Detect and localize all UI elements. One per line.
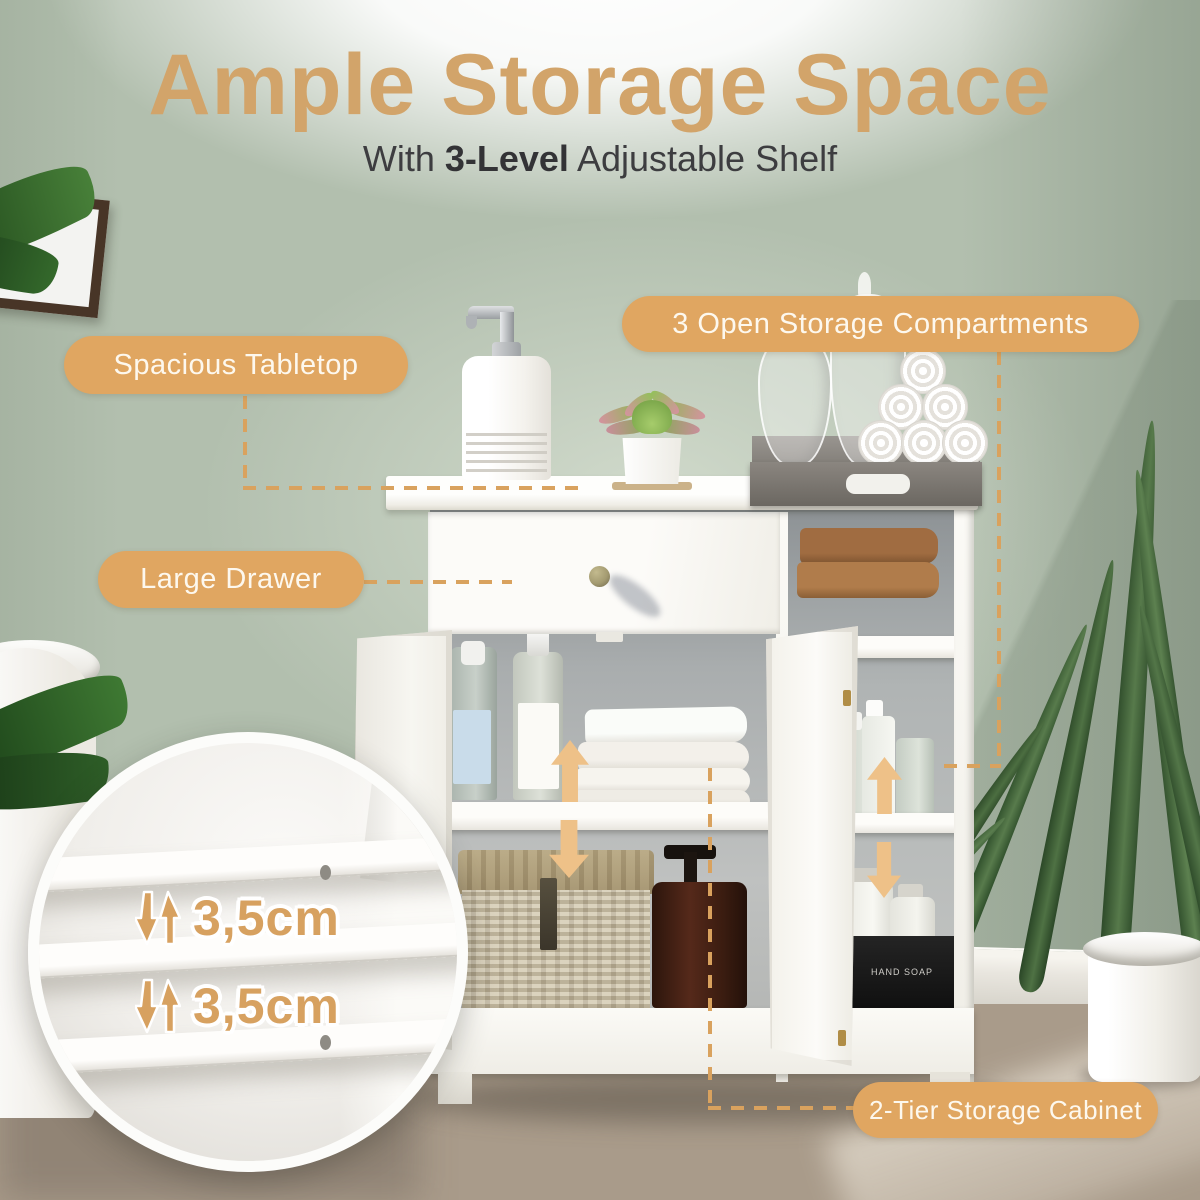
succulent-pot [620,438,684,484]
plant-pot [1088,948,1200,1082]
callout-large-drawer: Large Drawer [98,551,364,608]
succulent-center [632,400,672,434]
callout-open-compartments: 3 Open Storage Compartments [622,296,1139,352]
page-subtitle: With 3-Level Adjustable Shelf [0,138,1200,180]
shelf-pin-hole [320,1035,331,1050]
callout-label: Spacious Tabletop [114,349,359,382]
shelf-spacing-top: 3,5cm [135,889,340,947]
amber-bottle-neck [684,852,697,886]
soap-box: HAND SOAP [843,936,961,1008]
dispenser-spout-tip [466,316,477,329]
tabletop-connector-line [243,486,585,490]
up-down-arrows-icon [135,977,181,1035]
tabletop-connector-line [243,396,247,490]
bottle-label [453,710,491,784]
brown-towel [800,528,938,564]
drawer-connector-line [364,580,512,584]
rolled-towel [858,420,904,466]
callout-label: 2-Tier Storage Cabinet [869,1095,1142,1126]
shelf-spacing-inset: 3,5cm 3,5cm [28,732,468,1172]
up-down-arrows-icon [135,889,181,947]
shelf-spacing-value: 3,5cm [193,889,340,947]
door-hinge [838,1030,846,1046]
door-hinge [843,690,851,706]
basket-latch [540,878,557,950]
shelf-pin-hole [320,865,331,880]
shelf-spacing-bottom: 3,5cm [135,977,340,1035]
glass-jar-finial [858,272,871,298]
small-bottle [896,738,934,815]
cabinet-connector-line [708,768,712,1110]
bottle-label [518,703,559,789]
rolled-towel [901,420,947,466]
plant-pot-rim [1083,932,1200,966]
dispenser-ribs [466,432,547,472]
drawer-catch [596,632,623,642]
subtitle-prefix: With [363,138,445,179]
folded-towel [585,706,748,745]
rolled-towel [942,420,988,466]
compartments-connector-line [997,352,1001,768]
brown-towel [800,596,940,636]
cabinet-side-panel [954,508,974,1082]
callout-label: 3 Open Storage Compartments [672,308,1088,341]
callout-label: Large Drawer [140,563,322,596]
soap-box-label: HAND SOAP [871,967,933,977]
product-infographic: HAND SOAP [0,0,1200,1200]
compartments-connector-line [944,764,1001,768]
brown-towel [797,562,939,598]
shelf-spacing-value: 3,5cm [193,977,340,1035]
page-title: Ample Storage Space [0,36,1200,135]
subtitle-suffix: Adjustable Shelf [569,138,837,179]
amber-bottle [652,882,747,1008]
cabinet-base [430,1008,974,1074]
subtitle-highlight: 3-Level [445,138,569,179]
cabinet-connector-line [708,1106,854,1110]
tray-handle-slot [846,474,910,494]
pump-bottle-cap [461,641,485,665]
callout-two-tier-cabinet: 2-Tier Storage Cabinet [853,1082,1158,1138]
drawer-knob [589,566,610,587]
callout-spacious-tabletop: Spacious Tabletop [64,336,408,394]
